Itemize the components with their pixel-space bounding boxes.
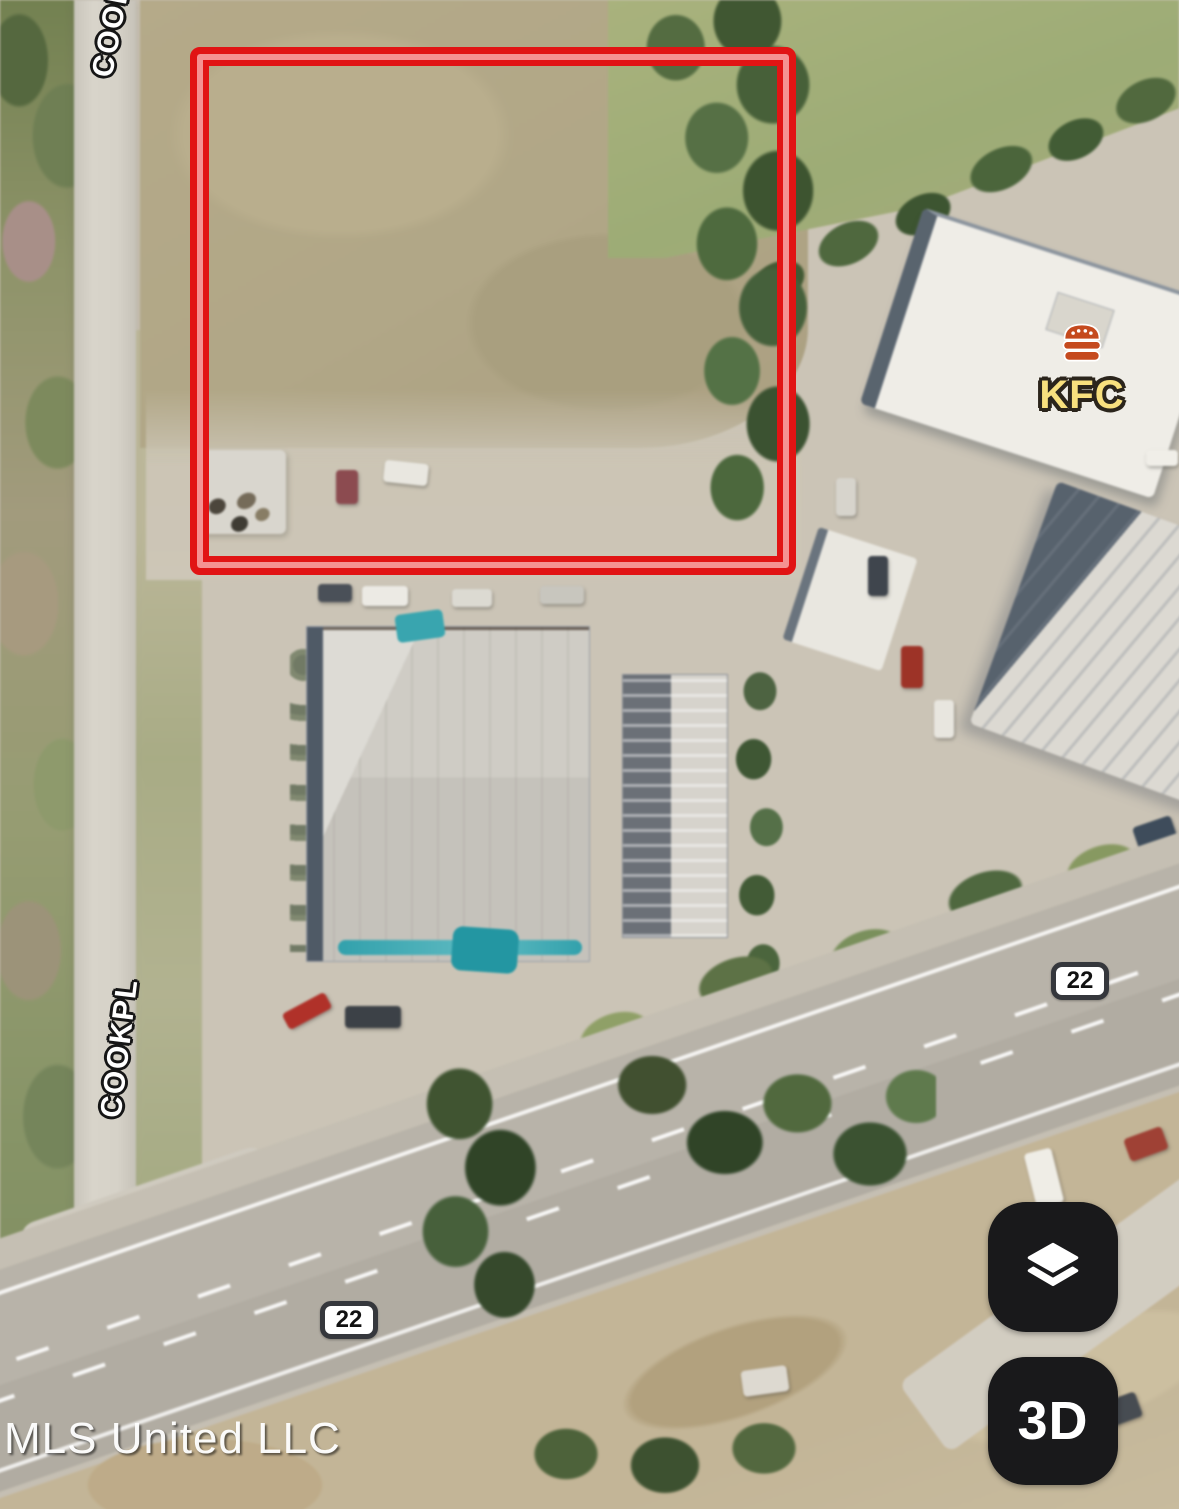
property-boundary-overlay xyxy=(190,47,796,575)
layers-icon xyxy=(1020,1233,1086,1302)
vehicle xyxy=(934,700,954,738)
vehicle xyxy=(868,556,888,596)
main-warehouse-roof xyxy=(306,626,590,962)
red-car xyxy=(282,992,333,1030)
route-number: 22 xyxy=(336,1306,363,1334)
attribution-watermark: MLS United LLC xyxy=(4,1414,341,1464)
vehicle xyxy=(540,586,584,604)
dark-van xyxy=(345,1006,401,1028)
route-shield-22: 22 xyxy=(320,1301,378,1339)
drive-thru-canopy xyxy=(782,527,917,671)
poi-label: KFC xyxy=(1039,373,1124,418)
vehicle xyxy=(318,584,352,602)
tree-cluster-bottom xyxy=(500,1398,830,1509)
vehicle xyxy=(901,646,923,688)
vehicle xyxy=(836,478,856,516)
3d-button[interactable]: 3D xyxy=(988,1357,1118,1485)
vehicle xyxy=(452,589,492,607)
vehicle xyxy=(1146,450,1178,466)
3d-button-label: 3D xyxy=(1017,1390,1088,1452)
warehouse-east-roof xyxy=(969,481,1179,809)
route-shield-22: 22 xyxy=(1051,962,1109,1000)
poi-kfc[interactable]: KFC xyxy=(1036,322,1128,422)
teal-canopy xyxy=(451,926,520,974)
vehicle xyxy=(362,586,408,606)
route-number: 22 xyxy=(1067,967,1094,995)
burger-icon xyxy=(1059,322,1105,367)
tree-cluster-south xyxy=(606,1016,936,1246)
storage-building-roof xyxy=(622,674,728,938)
layers-button[interactable] xyxy=(988,1202,1118,1332)
map-view[interactable]: COOKPL COOKPL KFC 22 22 MLS xyxy=(0,0,1179,1509)
tree-cluster-south xyxy=(378,1056,582,1322)
